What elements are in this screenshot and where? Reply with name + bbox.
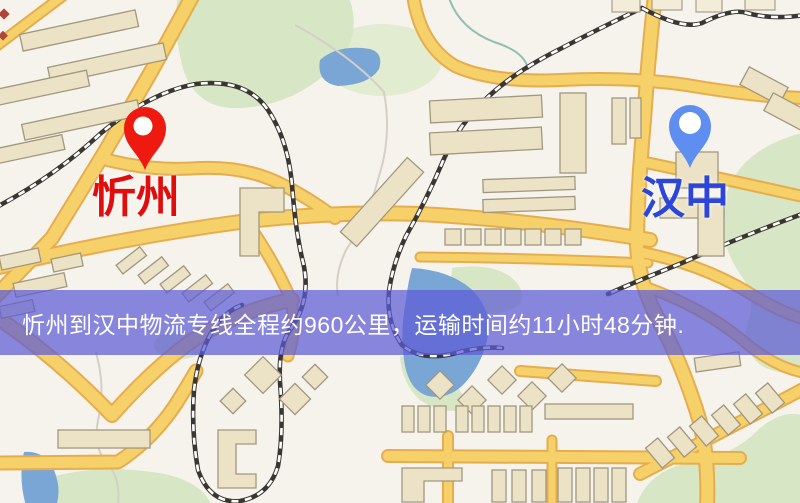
route-info-banner: 忻州到汉中物流专线全程约960公里，运输时间约11小时48分钟.: [0, 290, 800, 355]
marker-label-destination: 汉中: [641, 174, 729, 223]
blue-location-pin-icon: [669, 105, 711, 168]
red-location-pin-icon: [124, 107, 166, 170]
map-background: [0, 0, 800, 503]
marker-destination[interactable]: 汉中: [625, 100, 755, 225]
route-info-text: 忻州到汉中物流专线全程约960公里，运输时间约11小时48分钟.: [0, 306, 684, 340]
marker-origin[interactable]: 忻州: [80, 102, 210, 227]
map-canvas[interactable]: 忻州 汉中 忻州到汉中物流专线全程约960公里，运输时间约11小时48分钟.: [0, 0, 800, 503]
marker-label-origin: 忻州: [92, 173, 180, 222]
